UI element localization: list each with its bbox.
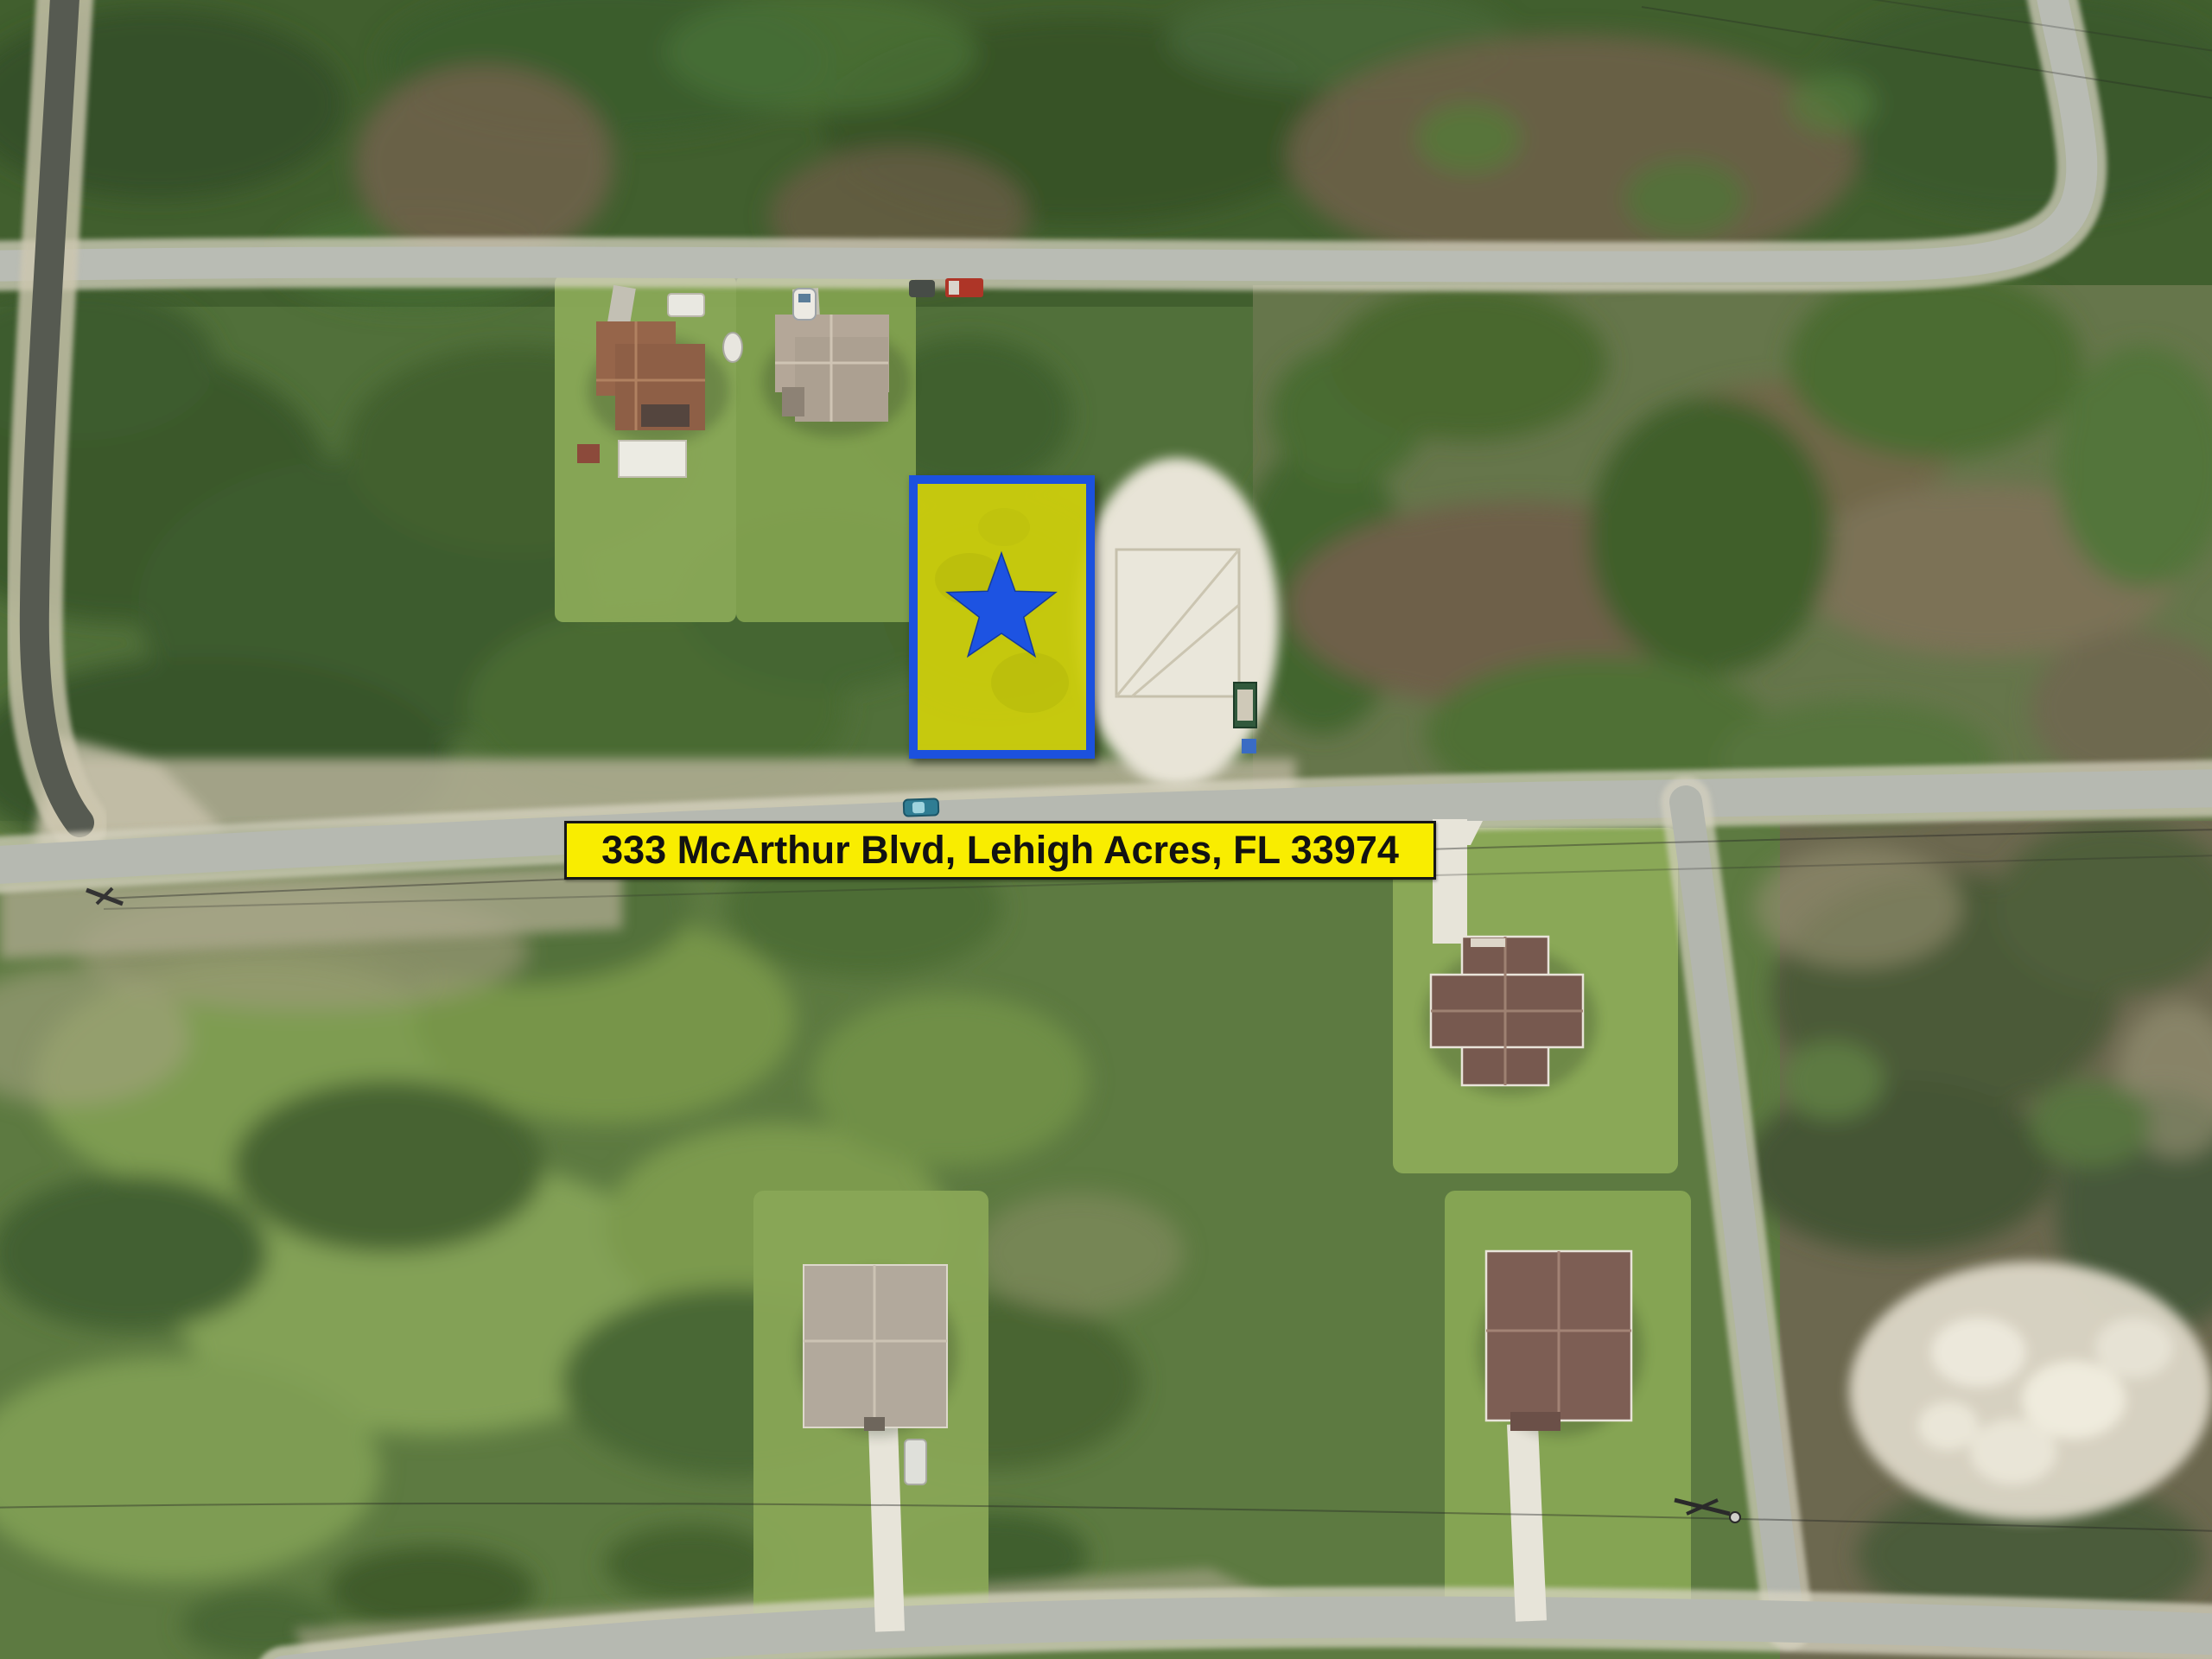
dumpster — [1234, 683, 1256, 728]
house-bottom-right — [1478, 1251, 1643, 1436]
boat-on-trailer — [793, 289, 816, 320]
white-car-driveway — [905, 1440, 926, 1484]
driveway-house-a — [619, 287, 625, 323]
white-rv — [668, 294, 704, 316]
teal-car — [904, 798, 939, 816]
address-banner-text: 333 McArthur Blvd, Lehigh Acres, FL 3397… — [601, 828, 1399, 873]
house-bottom-left — [798, 1265, 957, 1436]
address-banner: 333 McArthur Blvd, Lehigh Acres, FL 3397… — [564, 821, 1436, 880]
red-shed — [577, 444, 600, 463]
lanai — [641, 404, 690, 427]
driveway-house-4 — [1522, 1424, 1531, 1621]
construction-lot — [1075, 458, 1279, 786]
porta-potty — [1242, 739, 1256, 753]
driveway-house-bl — [883, 1426, 890, 1631]
dark-car — [909, 280, 935, 297]
highlighted-lot-overlay — [909, 475, 1095, 759]
aerial-listing-photo: 333 McArthur Blvd, Lehigh Acres, FL 3397… — [0, 0, 2212, 1659]
red-truck — [945, 278, 983, 297]
white-canopy-shed — [619, 441, 686, 477]
house-top-right — [762, 315, 911, 437]
boat — [723, 333, 742, 362]
